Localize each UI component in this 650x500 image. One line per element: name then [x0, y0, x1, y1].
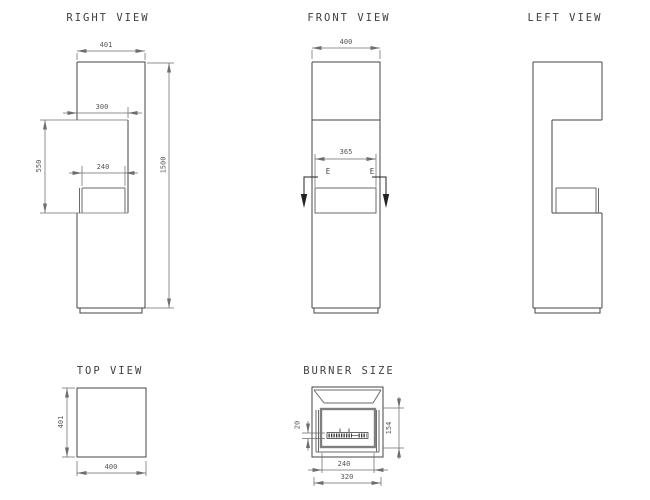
front-view-plinth	[314, 308, 378, 313]
drawing-sheet: RIGHT VIEW 401 300 550	[0, 0, 650, 500]
svg-text:20: 20	[294, 421, 302, 429]
left-view-plinth	[535, 308, 600, 313]
burner-tray	[321, 409, 375, 447]
right-view: RIGHT VIEW 401 300 550	[35, 12, 174, 313]
svg-text:550: 550	[35, 160, 43, 173]
front-view: FRONT VIEW 400 365 E E	[301, 12, 391, 313]
front-view-title: FRONT VIEW	[307, 12, 390, 24]
left-view: LEFT VIEW	[528, 12, 603, 313]
right-view-plinth	[80, 308, 142, 313]
svg-text:1500: 1500	[160, 157, 168, 174]
svg-text:240: 240	[97, 163, 110, 171]
svg-text:320: 320	[341, 473, 354, 481]
burner-slot	[327, 429, 368, 439]
svg-text:240: 240	[338, 460, 351, 468]
section-arrow-left	[301, 194, 307, 208]
burner-size-view: BURNER SIZE 20 154	[294, 365, 405, 486]
burner-dim-outer-width: 320	[314, 473, 381, 486]
burner-top-flare	[314, 390, 381, 403]
front-view-outline	[312, 62, 380, 308]
right-dim-width: 401	[77, 41, 145, 60]
right-dim-total-height: 1500	[145, 63, 174, 308]
svg-text:365: 365	[340, 148, 353, 156]
svg-text:401: 401	[100, 41, 113, 49]
front-dim-width: 400	[312, 38, 380, 59]
right-view-burner-box	[80, 188, 126, 213]
right-view-title: RIGHT VIEW	[66, 12, 149, 24]
svg-text:300: 300	[96, 103, 109, 111]
left-view-outline	[533, 62, 602, 308]
section-label-left: E	[326, 167, 331, 176]
top-view: TOP VIEW 401 400	[57, 365, 146, 476]
front-view-burner-box	[315, 188, 376, 213]
top-view-outline	[77, 388, 146, 457]
svg-text:154: 154	[385, 422, 393, 435]
burner-igniter-ticks	[340, 429, 349, 433]
svg-text:400: 400	[340, 38, 353, 46]
burner-dim-height: 154	[383, 397, 404, 459]
front-dim-opening-width: 365	[315, 148, 376, 187]
right-view-outline	[77, 62, 145, 308]
burner-dim-inner-width: 240	[308, 453, 388, 473]
svg-text:401: 401	[57, 416, 65, 429]
top-view-title: TOP VIEW	[77, 365, 144, 377]
right-dim-opening-depth: 300	[63, 103, 142, 118]
left-view-burner-box	[556, 188, 599, 213]
burner-size-title: BURNER SIZE	[303, 365, 395, 377]
drawing-canvas: RIGHT VIEW 401 300 550	[0, 0, 650, 500]
burner-side-walls	[316, 410, 379, 452]
top-dim-width: 400	[77, 461, 146, 476]
svg-text:400: 400	[105, 463, 118, 471]
section-arrow-right	[383, 194, 389, 208]
top-dim-depth: 401	[57, 388, 75, 457]
section-label-right: E	[370, 167, 375, 176]
left-view-title: LEFT VIEW	[528, 12, 603, 24]
